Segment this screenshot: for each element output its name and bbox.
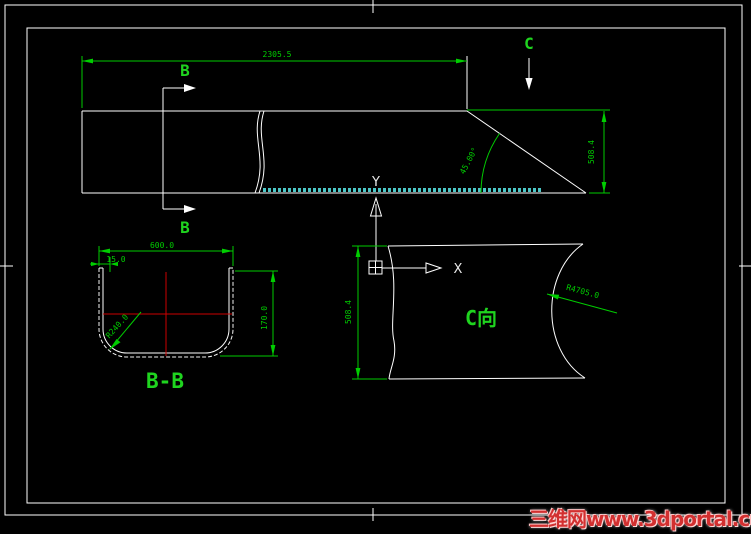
x-axis-label: X: [454, 262, 463, 277]
cview-dim-arrow-top: [356, 246, 361, 257]
label-b-top: B: [180, 61, 190, 80]
cview-radius-text: R4705.0: [565, 283, 600, 300]
section-b-top-arrow: [184, 84, 196, 92]
angle-text: 45.00°: [458, 146, 480, 176]
main-view: 2305.5 B B C 508.4 45.00°: [82, 34, 610, 237]
section-b-bottom-arrow: [184, 205, 196, 213]
dim-height-arrow-bottom: [602, 182, 607, 193]
bb-dim-depth-arrow-top: [271, 271, 276, 282]
section-bb-view: 600.0 15.0 170.0 R240.0 B-B: [90, 241, 278, 393]
dim-length-arrow-right: [456, 59, 467, 64]
bb-dim-depth-text: 170.0: [260, 306, 269, 330]
main-outline-bevel: [467, 111, 586, 193]
bb-title: B-B: [146, 369, 184, 393]
view-c-arrow: [525, 78, 532, 90]
angle-arc: [481, 133, 500, 193]
bb-dim-width-arrow-right: [222, 249, 233, 254]
bb-radius-arrow: [109, 339, 121, 350]
cad-drawing-canvas: 2305.5 B B C 508.4 45.00° Y X: [0, 0, 751, 534]
view-c: 508.4 R4705.0 C向: [344, 244, 617, 379]
y-axis-label: Y: [371, 175, 380, 190]
label-c: C: [524, 34, 534, 53]
dim-length-arrow-left: [82, 59, 93, 64]
dim-height-arrow-top: [602, 111, 607, 122]
dim-length-text: 2305.5: [263, 50, 292, 59]
bb-dim-width-arrow-left: [99, 249, 110, 254]
cview-top-edge: [388, 244, 583, 246]
bb-radius-text: R240.0: [104, 312, 130, 340]
cview-bottom-edge: [389, 378, 585, 379]
cview-break-line: [388, 246, 395, 379]
x-axis-arrow: [426, 263, 441, 273]
label-b-bottom: B: [180, 218, 190, 237]
cview-dim-arrow-bottom: [356, 368, 361, 379]
bb-dim-thk-arrow-left: [91, 262, 99, 266]
bb-dim-thk-text: 15.0: [106, 255, 125, 264]
drawing-svg: 2305.5 B B C 508.4 45.00° Y X: [0, 0, 751, 534]
bb-dim-depth-arrow-bottom: [271, 345, 276, 356]
cview-title: C向: [465, 306, 497, 330]
break-line-1: [255, 111, 260, 193]
dim-height-text: 508.4: [587, 140, 596, 164]
bb-dim-width-text: 600.0: [150, 241, 174, 250]
cview-concave-arc: [552, 244, 585, 378]
cview-radius-arrow: [547, 294, 559, 300]
cview-dim-text: 508.4: [344, 300, 353, 324]
watermark: 三维网www.3dportal.cn: [529, 503, 744, 531]
